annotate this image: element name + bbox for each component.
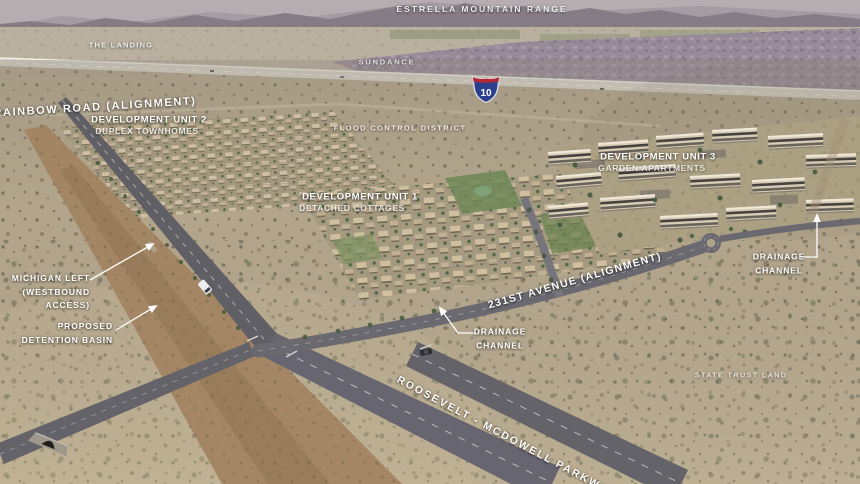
label-detached-cottages: DETACHED COTTAGES [299,204,405,213]
label-estrella-mountain-range: ESTRELLA MOUNTAIN RANGE [396,5,567,14]
callout-line: ACCESS) [6,299,90,313]
callout-detention-basin: PROPOSED DETENTION BASIN [16,320,113,347]
label-development-unit-2: DEVELOPMENT UNIT 2 [91,115,207,125]
callout-line: (WESTBOUND [6,286,90,300]
callout-line: PROPOSED [16,320,113,334]
interstate-number: 10 [480,88,492,99]
label-the-landing: THE LANDING [89,41,153,49]
callout-line: CHANNEL [474,339,527,353]
callout-line: MICHIGAN LEFT [6,272,90,286]
aerial-development-rendering: 10 ESTRELLA MOUNTAIN RANGE THE LANDING S… [0,0,860,484]
label-sundance: SUNDANCE [359,58,416,66]
scene-artwork: 10 [0,0,860,484]
label-state-trust-land: STATE TRUST LAND [695,371,788,379]
label-duplex-townhomes: DUPLEX TOWNHOMES [95,127,198,136]
label-flood-control-district: FLOOD CONTROL DISTRICT [334,124,467,132]
callout-michigan-left: MICHIGAN LEFT (WESTBOUND ACCESS) [6,272,90,313]
callout-drainage-channel-mid: DRAINAGE CHANNEL [474,326,527,353]
callout-line: DETENTION BASIN [16,334,113,348]
callout-line: CHANNEL [753,264,806,278]
callout-drainage-channel-right: DRAINAGE CHANNEL [753,251,806,278]
roundabout [701,233,721,253]
label-development-unit-3: DEVELOPMENT UNIT 3 [600,152,716,162]
callout-line: DRAINAGE [474,326,527,340]
label-development-unit-1: DEVELOPMENT UNIT 1 [302,192,418,202]
label-garden-apartments: GARDEN APARTMENTS [598,164,705,173]
callout-line: DRAINAGE [753,251,806,265]
